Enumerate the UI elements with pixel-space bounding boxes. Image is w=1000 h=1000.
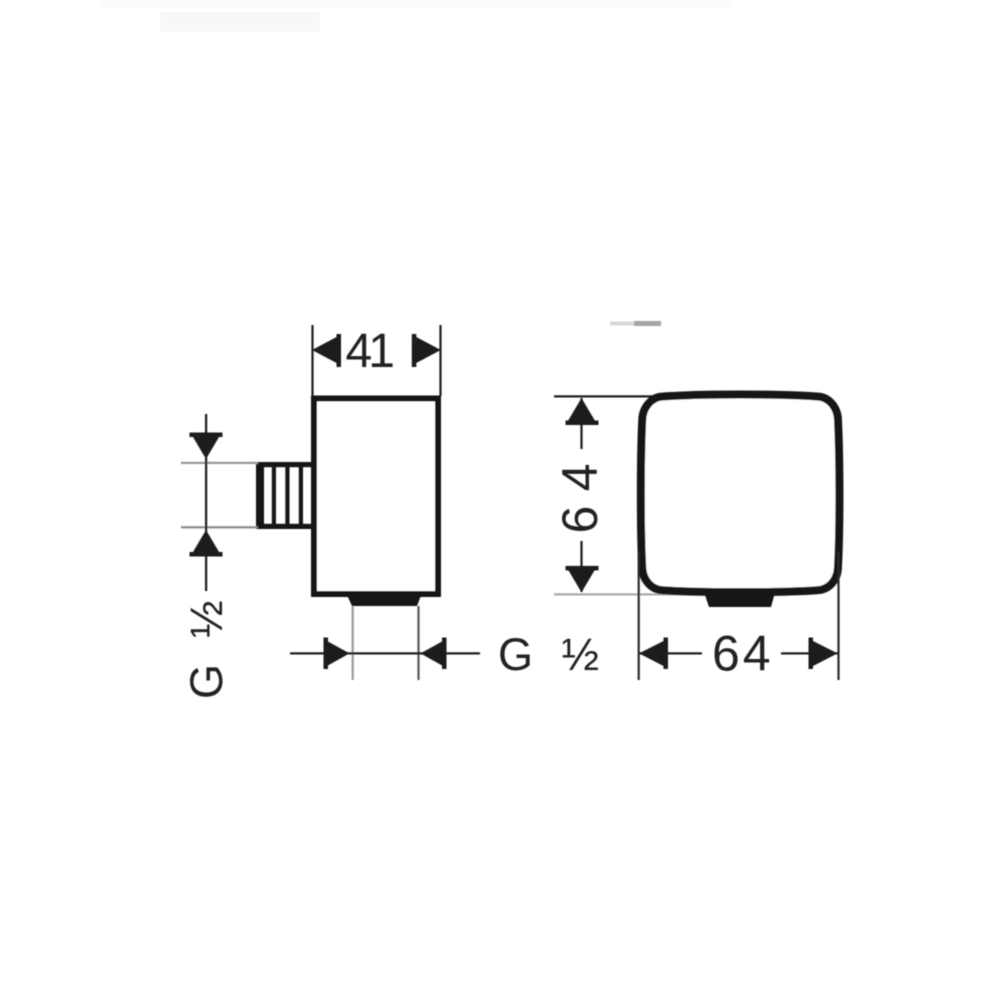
svg-text:G: G xyxy=(181,664,232,699)
svg-text:½: ½ xyxy=(562,629,600,680)
svg-text:½: ½ xyxy=(181,600,232,638)
svg-text:G: G xyxy=(498,629,533,680)
svg-text:64: 64 xyxy=(712,626,774,682)
svg-text:41: 41 xyxy=(346,325,394,378)
svg-text:64: 64 xyxy=(552,449,608,534)
